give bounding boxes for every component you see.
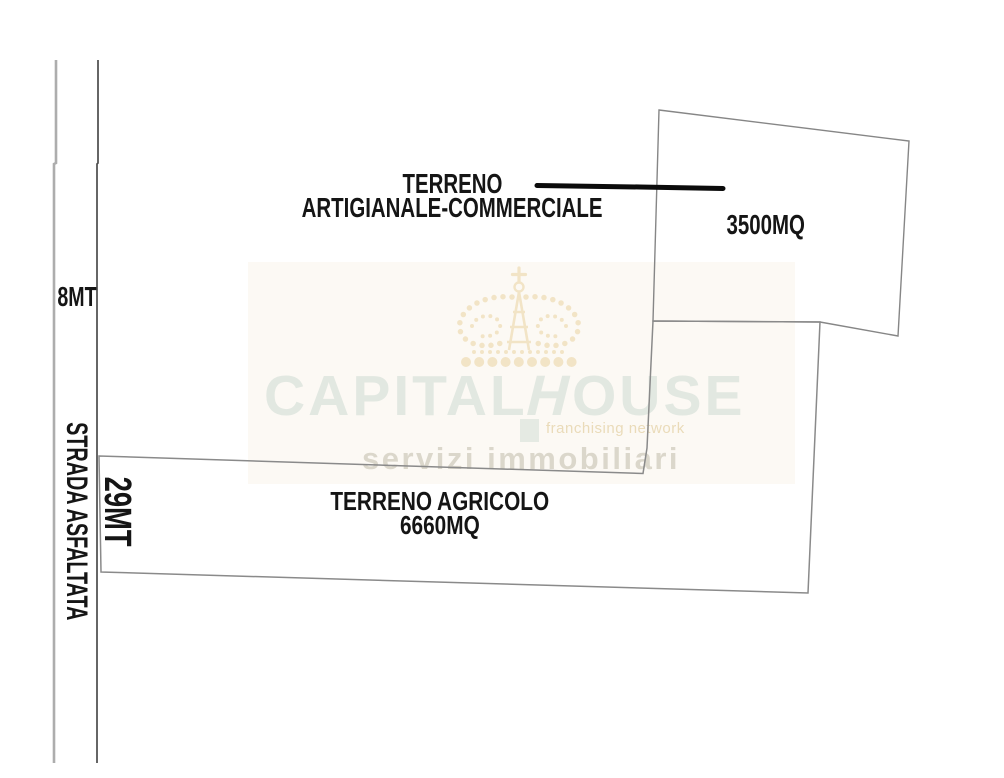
commercial-parcel-label: TERRENO ARTIGIANALE-COMMERCIALE [252,168,652,224]
road-left-edge-line [54,60,56,763]
road-right-edge-line [97,60,98,763]
road-frontage-label: 29MT [100,475,134,549]
commercial-area-label: 3500MQ [666,211,866,239]
plot-linework [0,0,1004,778]
agricultural-parcel-label: TERRENO AGRICOLO 6660MQ [240,487,640,539]
road-width-label: 8MT [27,283,127,311]
road-name-label: STRADA ASFALTATA [62,418,90,624]
agricultural-area: 6660MQ [400,513,480,537]
land-plot-sketch: CAPITALHOUSE franchising network servizi… [0,0,1004,778]
commercial-title-line2: ARTIGIANALE-COMMERCIALE [302,196,603,220]
agricultural-parcel-boundary [99,321,820,593]
